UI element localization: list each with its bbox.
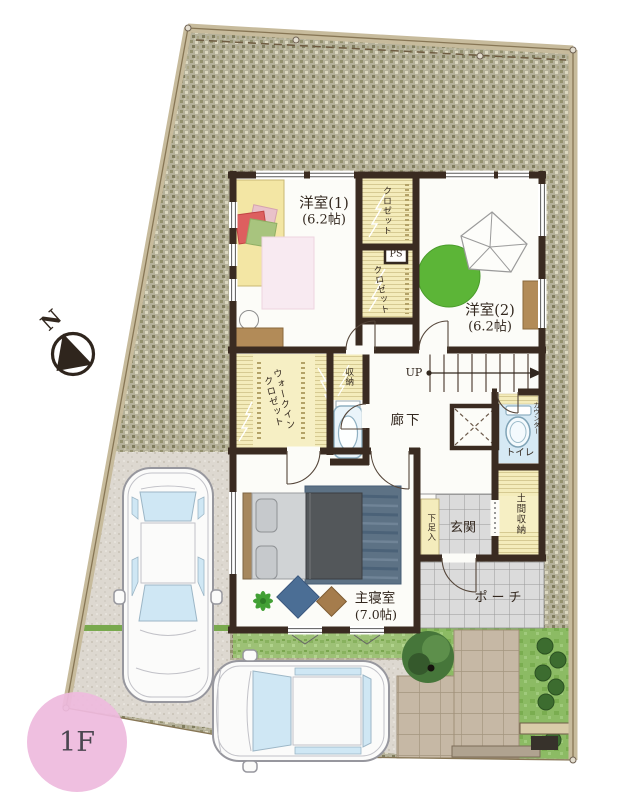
shoe-cabinet-label: 下足入 [425,514,435,543]
blanket [306,493,362,579]
side-mirror [114,590,125,604]
up-label: UP [406,367,423,379]
garden-tree [402,631,454,683]
master-bedroom-name: 主寝室 [355,591,396,606]
stool [240,311,259,330]
car-sedan [114,468,222,702]
floor-plan-page: 洋室(1) (6.2帖) 洋室(2) (6.2帖) 主寝室 (7.0帖) 廊下 … [0,0,620,800]
car-minivan [213,650,389,772]
floor-plan-canvas [0,0,620,800]
side-mirror [211,590,222,604]
toilet-label: トイレ [506,449,535,460]
master-bedroom-size: (7.0帖) [355,608,397,622]
floor-badge-label: 1F [59,728,95,758]
counter-label: カウンター [531,402,538,435]
room1-name: 洋室(1) [299,196,349,212]
hallway-label: 廊下 [391,413,422,428]
entrance-label: 玄関 [450,522,476,537]
ps-label: PS [390,250,403,261]
mailbox [531,736,558,750]
storage-label: 収納 [343,368,353,387]
doma-storage-label: 土間収納 [514,493,525,535]
void-square [452,406,497,448]
staircase [418,354,542,392]
potted-plant [253,591,273,611]
pink-rug [262,237,314,309]
headboard [243,493,252,579]
north-arrow-icon [53,334,94,375]
room2-size: (6.2帖) [468,321,512,336]
room2-name: 洋室(2) [465,303,515,319]
room1-size: (6.2帖) [302,214,346,229]
closet-upper-label: クロゼット [381,186,391,236]
double-bed [243,493,362,579]
pillow [256,499,277,532]
pillow [256,546,277,579]
side-mirror [243,761,257,772]
porch-label: ポーチ [474,592,525,607]
side-mirror [243,650,257,661]
